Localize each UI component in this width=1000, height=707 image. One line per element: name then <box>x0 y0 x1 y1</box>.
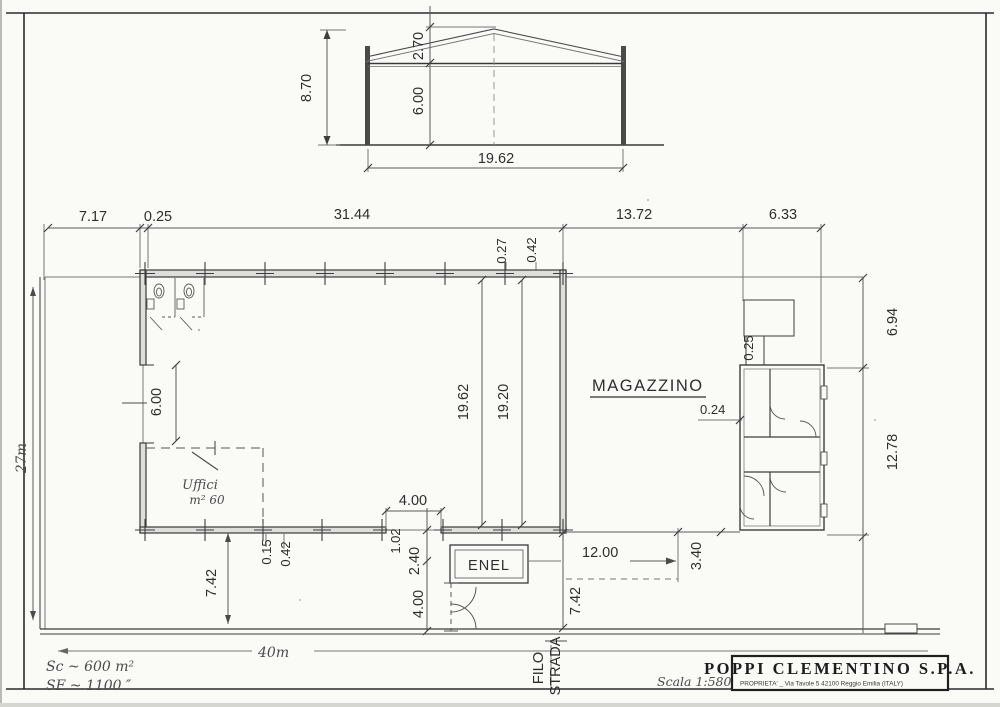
gate-leaf-arc <box>451 604 476 629</box>
dim-annex-depth: 12.78 <box>885 434 901 470</box>
dim-s2-240: 2.40 <box>407 547 423 575</box>
scan-edge-bottom <box>0 703 1000 707</box>
cross-section: 8.70 2.70 6.00 19.62 <box>299 6 664 172</box>
dim-setback-right: 7.42 <box>568 587 584 615</box>
office-label: Uffici <box>182 478 218 493</box>
enel-label: ENEL <box>468 558 510 574</box>
dim-wt-042: 0.42 <box>278 541 293 566</box>
dim-building-width: 31.44 <box>334 207 370 223</box>
entrance-gate <box>444 583 476 631</box>
wc-area <box>147 278 204 330</box>
scan-edge-left <box>0 0 2 707</box>
page-border <box>6 13 994 689</box>
room-label-magazzino: MAGAZZINO <box>592 377 704 395</box>
dim-left-door: 6.00 <box>149 361 180 445</box>
dim-boundary-left: 27m <box>14 287 36 620</box>
door-arc <box>770 404 785 419</box>
note-sc: Sc ~ 600 m² <box>46 659 135 675</box>
dim-opening: 4.00 <box>382 493 445 528</box>
street-gate-marker <box>885 624 917 633</box>
title-block: POPPI CLEMENTINO S.P.A. PROPRIETA' _ Via… <box>704 656 976 690</box>
blueprint-page: 8.70 2.70 6.00 19.62 7.17 0.25 31.44 13.… <box>0 0 1000 707</box>
annex-building <box>740 300 827 530</box>
dim-s1-102: 1.02 <box>388 528 403 553</box>
interior-dims: 19.62 19.20 <box>456 276 526 529</box>
dim-annex-width: 6.33 <box>769 207 797 223</box>
door-arc <box>800 421 816 437</box>
note-sf: SF ~ 1100 ″ <box>46 678 132 694</box>
dim-left-offset: 7.17 <box>79 209 107 225</box>
dim-yard-1200: 12.00 <box>582 545 618 561</box>
enel-cabinet: ENEL <box>450 545 561 583</box>
window-mark <box>821 504 827 517</box>
gate-dims: 1.02 2.40 4.00 <box>388 508 431 635</box>
dim-depth-1962: 19.62 <box>456 384 472 420</box>
dim-topwall-027: 0.27 <box>494 238 509 263</box>
bottomwall-dims: 0.15 0.42 <box>259 533 293 567</box>
dim-boundary-27m: 27m <box>14 443 30 474</box>
street-strada-label: STRADA <box>548 636 564 695</box>
dim-annex-wall-024-label: 0.24 <box>700 402 725 417</box>
dim-setback-left: 7.42 <box>204 569 220 597</box>
gate-leaf-arc <box>451 587 476 612</box>
wall-right <box>560 270 566 533</box>
door-arc <box>744 476 764 496</box>
dim-section-width: 19.62 <box>478 151 514 167</box>
title-address: PROPRIETA' _ Via Tavole 5 42100 Reggio E… <box>740 681 903 688</box>
dim-s3-400: 4.00 <box>411 590 427 618</box>
window-mark <box>821 386 827 399</box>
dim-door-600: 6.00 <box>149 388 165 416</box>
street-label: FILO STRADA <box>531 636 567 695</box>
dim-section-wall-height: 6.00 <box>411 87 427 115</box>
dim-yard-width: 13.72 <box>616 207 652 223</box>
drawing-canvas: 8.70 2.70 6.00 19.62 7.17 0.25 31.44 13.… <box>0 0 1000 707</box>
office-area: Uffici m² 60 <box>146 441 263 527</box>
window-mark <box>821 452 827 465</box>
dim-depth-1920: 19.20 <box>496 384 512 420</box>
right-dims: 6.94 12.78 <box>827 274 901 633</box>
dim-topwall-042: 0.42 <box>524 237 539 262</box>
title-company: POPPI CLEMENTINO S.P.A. <box>704 659 976 678</box>
dim-annex-wall-025: 0.25 <box>741 335 756 360</box>
dim-gap-340: 3.40 <box>689 542 705 570</box>
dim-wall-025: 0.25 <box>144 209 172 225</box>
dim-frontage-40m: 40m <box>257 645 289 661</box>
dim-annex-wall-024: 0.24 <box>698 402 744 424</box>
dim-section-total-height: 8.70 <box>299 74 315 102</box>
dim-wt-015: 0.15 <box>259 539 274 564</box>
door-arc <box>770 476 786 492</box>
wc-sink-icon <box>177 299 184 309</box>
wc-sink-icon <box>147 299 154 309</box>
dim-section-roof-rise: 2.70 <box>411 32 427 60</box>
property-boundaries <box>40 277 940 634</box>
street-filo-label: FILO <box>531 652 547 684</box>
office-area-label: m² 60 <box>189 493 225 507</box>
door-arc <box>740 505 754 519</box>
bottom-yard-dims: 12.00 3.40 <box>566 528 740 582</box>
dim-opening-400: 4.00 <box>399 493 427 509</box>
dim-right-gap: 6.94 <box>885 308 901 336</box>
